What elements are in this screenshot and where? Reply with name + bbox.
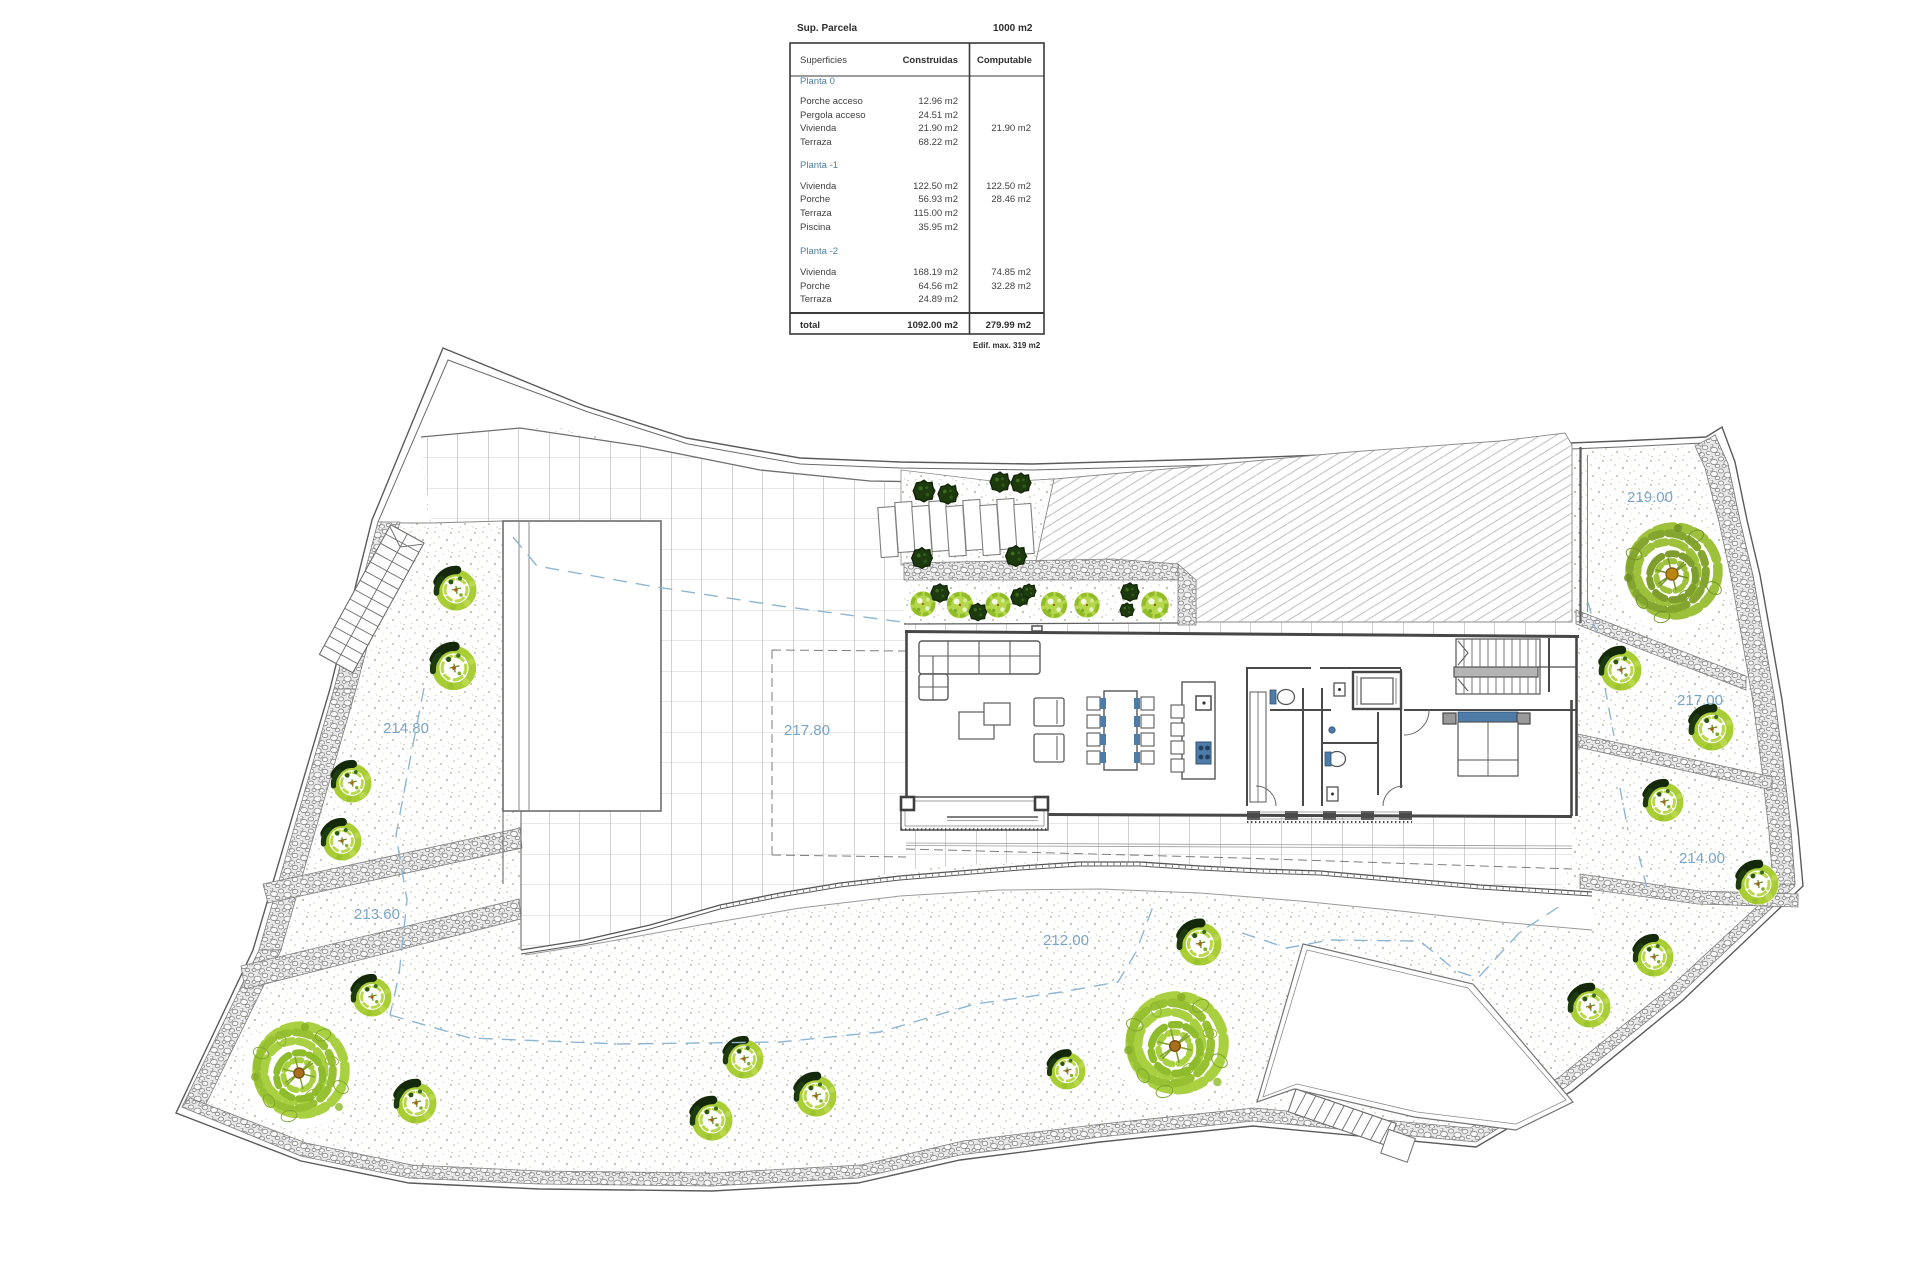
- svg-text:Porche: Porche: [800, 194, 830, 205]
- svg-text:212.00: 212.00: [1043, 932, 1089, 949]
- svg-text:115.00 m2: 115.00 m2: [914, 208, 958, 219]
- svg-text:Superficies: Superficies: [800, 55, 847, 66]
- svg-text:Piscina: Piscina: [800, 222, 831, 233]
- svg-text:Terraza: Terraza: [800, 137, 832, 148]
- svg-text:Porche acceso: Porche acceso: [800, 96, 863, 107]
- svg-text:Vivienda: Vivienda: [800, 181, 837, 192]
- svg-text:24.51 m2: 24.51 m2: [918, 110, 958, 121]
- svg-text:28.46 m2: 28.46 m2: [991, 194, 1031, 205]
- svg-text:74.85 m2: 74.85 m2: [991, 267, 1031, 278]
- svg-text:122.50 m2: 122.50 m2: [913, 181, 958, 192]
- svg-text:1092.00 m2: 1092.00 m2: [907, 320, 958, 331]
- svg-text:214.00: 214.00: [1679, 850, 1725, 867]
- svg-text:32.28 m2: 32.28 m2: [991, 281, 1031, 292]
- svg-text:68.22 m2: 68.22 m2: [918, 137, 958, 148]
- svg-text:279.99 m2: 279.99 m2: [986, 320, 1031, 331]
- svg-text:12.96 m2: 12.96 m2: [918, 96, 958, 107]
- svg-text:Vivienda: Vivienda: [800, 123, 837, 134]
- svg-text:Construidas: Construidas: [903, 55, 958, 66]
- svg-text:217.00: 217.00: [1677, 692, 1723, 709]
- svg-text:64.56 m2: 64.56 m2: [918, 281, 958, 292]
- svg-text:168.19 m2: 168.19 m2: [913, 267, 958, 278]
- svg-text:Computable: Computable: [977, 55, 1032, 66]
- svg-text:total: total: [800, 320, 820, 331]
- svg-text:Vivienda: Vivienda: [800, 267, 837, 278]
- svg-text:Edif. max. 319 m2: Edif. max. 319 m2: [973, 341, 1041, 350]
- svg-text:219.00: 219.00: [1627, 489, 1673, 506]
- svg-text:56.93 m2: 56.93 m2: [918, 194, 958, 205]
- svg-text:217.80: 217.80: [784, 722, 830, 739]
- svg-text:Terraza: Terraza: [800, 294, 832, 305]
- svg-text:Sup. Parcela: Sup. Parcela: [797, 23, 857, 34]
- svg-text:1000 m2: 1000 m2: [993, 23, 1033, 34]
- svg-text:214.80: 214.80: [383, 720, 429, 737]
- svg-text:21.90 m2: 21.90 m2: [918, 123, 958, 134]
- svg-text:122.50 m2: 122.50 m2: [986, 181, 1031, 192]
- svg-text:21.90 m2: 21.90 m2: [991, 123, 1031, 134]
- svg-text:213.60: 213.60: [354, 906, 400, 923]
- svg-text:Planta -2: Planta -2: [800, 246, 838, 257]
- svg-text:Porche: Porche: [800, 281, 830, 292]
- svg-text:Planta 0: Planta 0: [800, 76, 835, 87]
- svg-text:Terraza: Terraza: [800, 208, 832, 219]
- svg-text:Planta -1: Planta -1: [800, 160, 838, 171]
- svg-text:24.89 m2: 24.89 m2: [918, 294, 958, 305]
- svg-text:35.95 m2: 35.95 m2: [918, 222, 958, 233]
- svg-text:Pergola acceso: Pergola acceso: [800, 110, 865, 121]
